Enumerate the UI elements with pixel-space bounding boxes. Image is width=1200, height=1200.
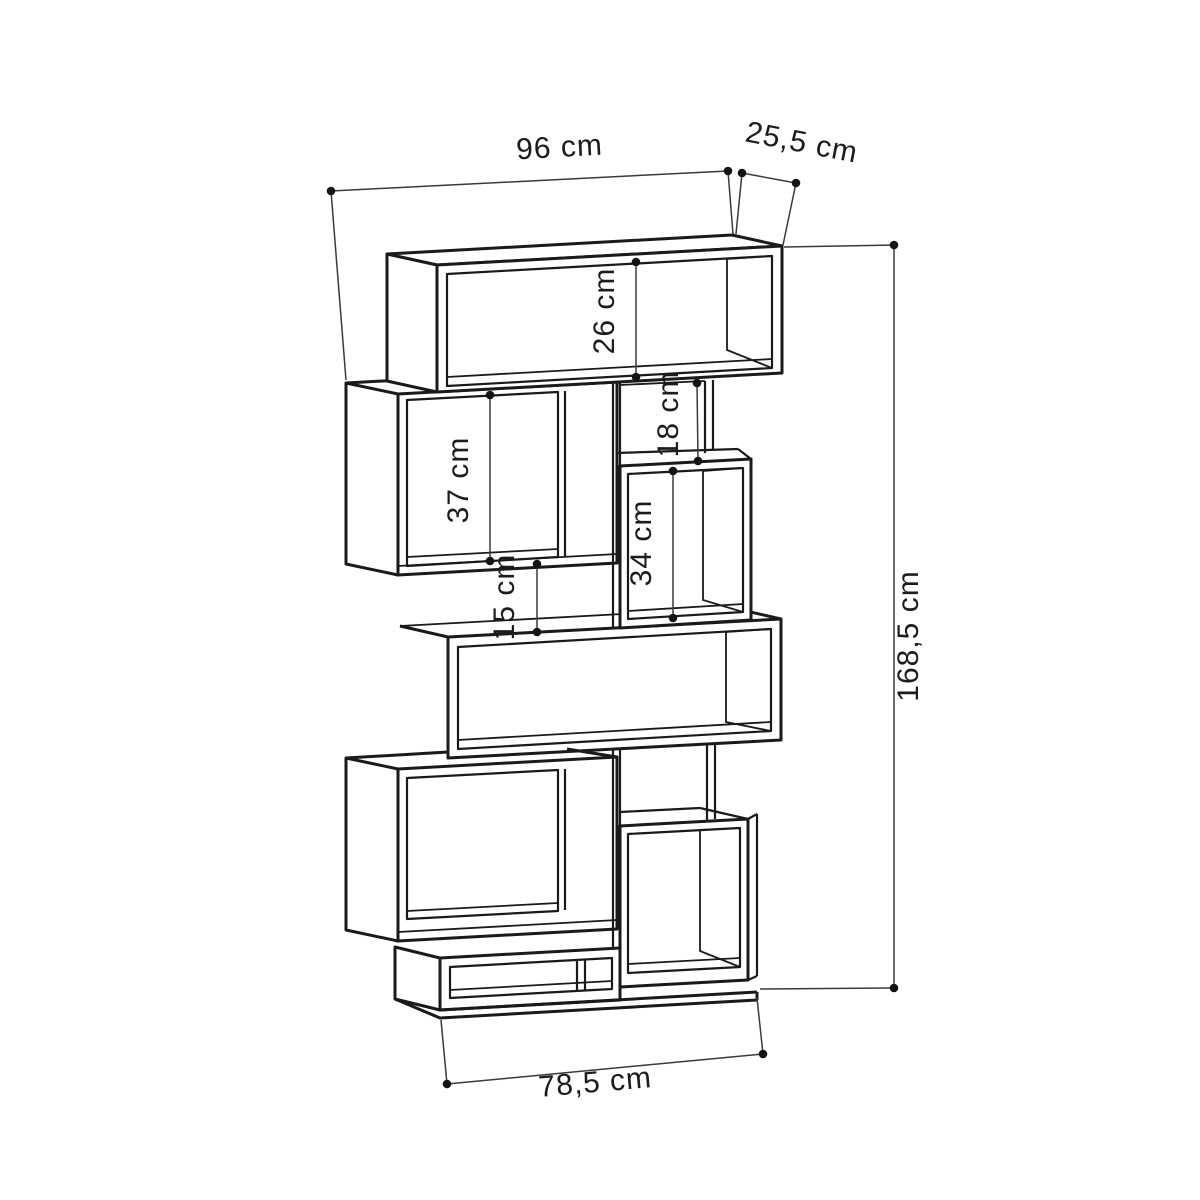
dimension-endpoint-dot	[738, 169, 747, 178]
middle-wide-box	[400, 608, 781, 758]
dimension-endpoint-dot	[632, 258, 641, 267]
lower-left-box	[346, 749, 617, 941]
dimension-endpoint-dot	[890, 984, 899, 993]
dimension-endpoint-dot	[724, 167, 733, 176]
dimension-label-upper-middle-gap: 18 cm	[652, 371, 685, 458]
upper-left-box	[346, 371, 617, 575]
top-box	[387, 235, 782, 392]
dimension-endpoint-dot	[486, 391, 495, 400]
dimension-endpoint-dot	[669, 467, 678, 476]
dimension-overall-height: 168,5 cm	[760, 241, 925, 993]
dimension-label-overall-width: 96 cm	[515, 129, 603, 167]
dimension-endpoint-dot	[890, 241, 899, 250]
dimension-endpoint-dot	[669, 614, 678, 623]
dimension-endpoint-dot	[327, 187, 336, 196]
dimension-label-right-compartment: 34 cm	[625, 500, 658, 587]
upper-right-divider	[705, 380, 713, 453]
dimension-endpoint-dot	[443, 1080, 452, 1089]
dimension-endpoint-dot	[694, 457, 703, 466]
dimension-label-depth: 25,5 cm	[743, 116, 861, 170]
lower-right-divider	[707, 743, 715, 820]
technical-drawing-page: 96 cm 25,5 cm 26 cm 37 cm	[0, 0, 1200, 1200]
dimension-endpoint-dot	[632, 373, 641, 382]
dimension-label-overall-height: 168,5 cm	[892, 570, 925, 701]
dimension-label-top-compartment: 26 cm	[588, 268, 621, 355]
dimension-endpoint-dot	[759, 1050, 768, 1059]
bookcase-dimension-diagram: 96 cm 25,5 cm 26 cm 37 cm	[0, 0, 1200, 1200]
dimension-endpoint-dot	[693, 379, 702, 388]
bottom-right-box	[620, 808, 757, 987]
dimension-endpoint-dot	[533, 628, 542, 637]
bookcase-drawing	[346, 235, 782, 1018]
dimension-label-base-width: 78,5 cm	[537, 1061, 653, 1104]
dimension-depth: 25,5 cm	[736, 116, 861, 245]
dimension-endpoint-dot	[792, 179, 801, 188]
dimension-label-upper-left-compartment: 37 cm	[442, 437, 475, 524]
dimension-label-middle-gap: 15 cm	[488, 554, 521, 641]
dimension-endpoint-dot	[533, 560, 542, 569]
